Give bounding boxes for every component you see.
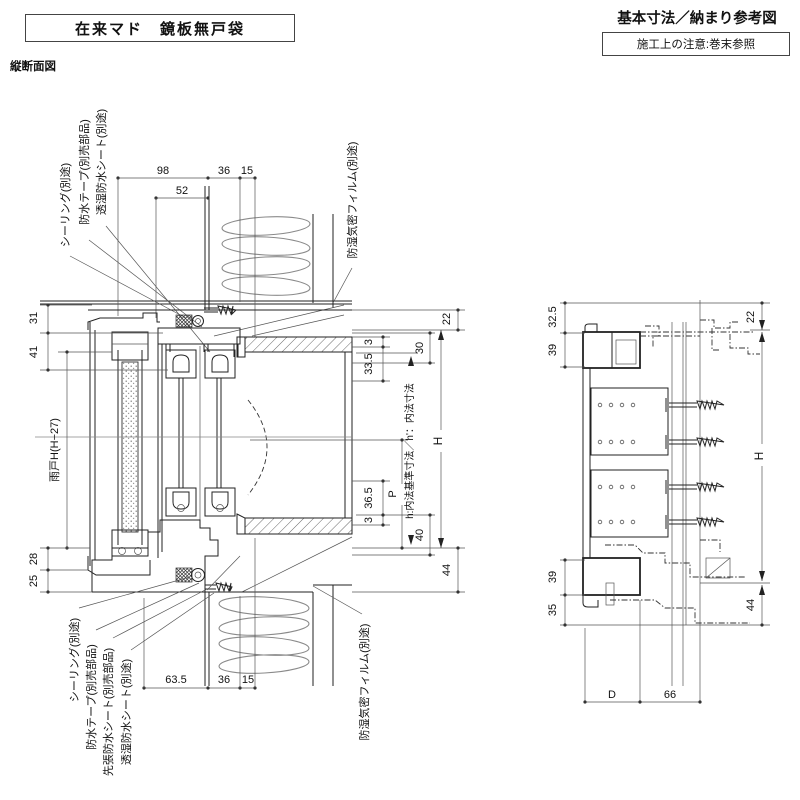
screw xyxy=(666,435,724,449)
drawing-page: 在来マド 鏡板無戸袋 縦断面図 基本寸法／納まり参考図 施工上の注意:巻末参照 xyxy=(0,0,800,800)
dim-44: 44 xyxy=(441,564,453,576)
lower-insulation xyxy=(219,595,310,676)
left-dimensions: 31 41 雨戸H(H−27) 28 25 xyxy=(28,303,168,593)
sill-bracket xyxy=(605,540,750,623)
dim-D: D xyxy=(608,689,616,701)
label-tape-bottom: 防水テープ(別売部品) xyxy=(84,644,98,750)
label-tape-top: 防水テープ(別売部品) xyxy=(77,119,91,225)
sill-screw xyxy=(205,583,232,591)
dim-P: P xyxy=(387,490,399,497)
label-sealing-bottom: シーリング(別途) xyxy=(67,618,81,702)
dim-44-right: 44 xyxy=(745,599,757,611)
dim-amado-h: 雨戸H(H−27) xyxy=(49,418,61,482)
dim-36-bottom: 36 xyxy=(218,674,230,686)
screw xyxy=(666,398,724,412)
right-drawing-dimensions: 32.5 39 39 35 22 H xyxy=(547,301,770,703)
dim-31: 31 xyxy=(28,312,40,324)
dim-36-top: 36 xyxy=(218,165,230,177)
shutter-assembly xyxy=(88,322,150,575)
dim-35: 35 xyxy=(547,604,559,616)
handle-arc xyxy=(248,400,267,495)
dim-22: 22 xyxy=(441,313,453,325)
dim-63-5: 63.5 xyxy=(165,674,186,686)
dim-32-5: 32.5 xyxy=(547,306,559,327)
shutter-rail-section-drawing: 32.5 39 39 35 22 H xyxy=(547,300,770,704)
dim-66: 66 xyxy=(664,689,676,701)
interior-head-trim xyxy=(237,337,352,518)
sill-sealing-bead xyxy=(192,569,205,582)
screw xyxy=(666,515,724,529)
vertical-section-drawing: 98 52 36 15 シーリング(別途) 防水テープ(別売部品) 透湿防水シー… xyxy=(28,109,465,776)
rail-top-box xyxy=(583,324,640,368)
label-sheet-bottom: 透湿防水シート(別途) xyxy=(119,659,133,765)
label-sakibari-bottom: 先張防水シート(別売部品) xyxy=(101,648,115,776)
mounting-plates xyxy=(591,388,668,537)
dim-H: H xyxy=(431,437,445,446)
shutter-panel xyxy=(122,362,138,532)
vertical-members xyxy=(583,300,700,702)
dim-3-top: 3 xyxy=(363,339,375,345)
upper-insulation xyxy=(222,215,311,298)
dim-22-right: 22 xyxy=(745,311,757,323)
head-sealing-backer xyxy=(176,315,192,327)
dim-30: 30 xyxy=(414,342,426,354)
dim-40: 40 xyxy=(414,529,426,541)
dim-36-5: 36.5 xyxy=(363,487,375,508)
section-drawing: 98 52 36 15 シーリング(別途) 防水テープ(別売部品) 透湿防水シー… xyxy=(0,0,800,800)
dim-52: 52 xyxy=(176,185,188,197)
dim-28: 28 xyxy=(28,553,40,565)
label-film-bottom: 防湿気密フィルム(別途) xyxy=(357,624,371,741)
dim-25: 25 xyxy=(28,575,40,587)
fixing-screws xyxy=(666,398,724,529)
lower-wall xyxy=(205,585,333,686)
label-sealing-top: シーリング(別途) xyxy=(58,163,72,247)
dim-15-bottom: 15 xyxy=(242,674,254,686)
label-film-top: 防湿気密フィルム(別途) xyxy=(345,142,359,259)
screw xyxy=(666,480,724,494)
dim-3-bottom: 3 xyxy=(363,517,375,523)
dim-39-bottom: 39 xyxy=(547,571,559,583)
dim-41: 41 xyxy=(28,346,40,358)
dim-uchinori: h:内法基準寸法／h'：内法寸法 xyxy=(403,383,416,519)
dim-39-top: 39 xyxy=(547,344,559,356)
dim-98: 98 xyxy=(157,165,169,177)
dim-15-top: 15 xyxy=(241,165,253,177)
dim-33-5: 33.5 xyxy=(363,353,375,374)
label-sheet-top: 透湿防水シート(別途) xyxy=(94,109,108,215)
dim-H-right: H xyxy=(752,452,766,461)
